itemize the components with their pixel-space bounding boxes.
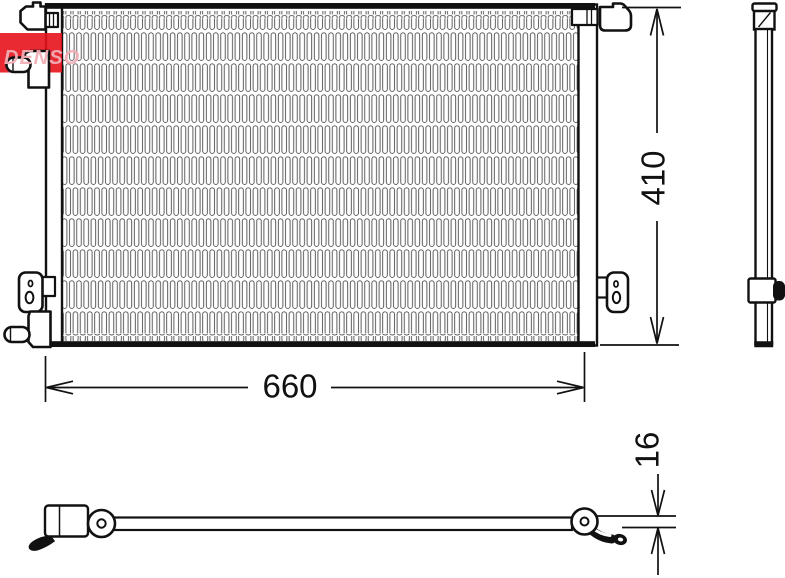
outlet-pipe-stub: [5, 327, 30, 342]
denso-logo-text: DENSO: [4, 47, 80, 69]
bottom-view-right-port-hole: [581, 518, 589, 526]
bottom-view-left-port-hole: [97, 519, 105, 527]
dimension-width: 660: [46, 352, 585, 405]
bottom-view: [29, 506, 627, 551]
front-view: DENSO: [0, 3, 631, 348]
condenser-technical-drawing: DENSO 660: [0, 0, 785, 578]
side-view-top-cap: [753, 4, 777, 12]
mid-right-bracket-hole-large: [613, 292, 620, 303]
side-view: [749, 4, 785, 348]
mid-right-bracket-hole-small: [614, 281, 618, 287]
technical-drawing-canvas: DENSO 660: [0, 0, 785, 578]
mid-left-bracket-hole-large: [26, 292, 34, 304]
lower-pipe-fitting-block: [29, 312, 51, 348]
bottom-header-plate: [45, 341, 595, 347]
core-fin-matrix: [62, 11, 578, 341]
top-header-plate: [45, 3, 595, 9]
dimension-depth: 16: [597, 432, 676, 575]
core-tube-row-top: [62, 11, 578, 18]
top-right-sleeve: [572, 9, 598, 25]
core-tube-row-bottom: [62, 334, 578, 341]
side-view-bracket-band: [749, 279, 776, 303]
depth-dimension-label: 16: [629, 432, 666, 469]
side-view-bottom-cap: [755, 342, 774, 348]
top-left-mounting-bracket: [21, 3, 46, 30]
height-dimension-label: 410: [635, 150, 672, 205]
top-left-sleeve: [46, 13, 59, 27]
right-tank: [579, 5, 598, 346]
bottom-view-left-block: [45, 506, 88, 537]
bottom-view-bar: [86, 518, 572, 531]
side-view-bracket-tab: [774, 282, 785, 301]
core-fin-pattern: [62, 19, 578, 334]
width-dimension-label: 660: [262, 368, 317, 405]
mid-left-bracket-hole-small: [28, 281, 32, 287]
